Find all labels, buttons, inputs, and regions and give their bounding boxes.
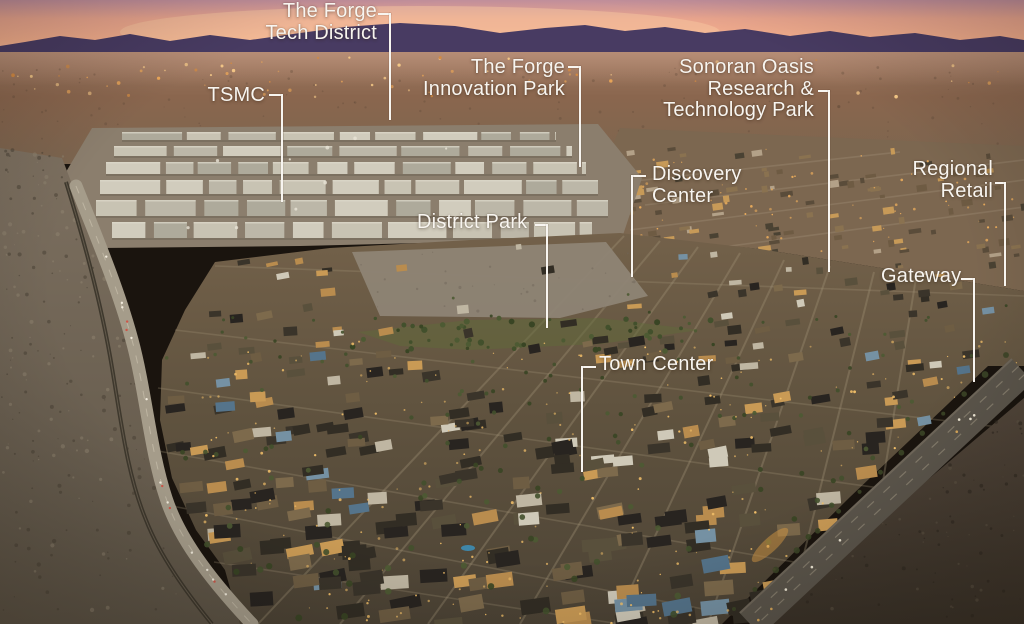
leader-sonoran-oasis-line (828, 90, 830, 272)
leader-forge-innovation-park-line (579, 66, 581, 167)
label-district-park: District Park (417, 212, 527, 234)
label-line: Sonoran Oasis (663, 57, 814, 79)
label-gateway: Gateway (881, 266, 961, 288)
label-sonoran-oasis: Sonoran Oasis Research & Technology Park (663, 57, 814, 122)
label-line: Regional (912, 159, 993, 181)
leader-tsmc-line (281, 94, 283, 202)
leader-town-center-line (581, 366, 583, 472)
label-line: Retail (912, 181, 993, 203)
label-line: Center (652, 186, 742, 208)
label-line: Research & (663, 79, 814, 101)
aerial-site-plan: The Forge Tech District TSMC The Forge I… (0, 0, 1024, 624)
label-line: The Forge (265, 1, 377, 23)
label-regional-retail: Regional Retail (912, 159, 993, 202)
label-line: Discovery (652, 164, 742, 186)
label-forge-tech-district: The Forge Tech District (265, 1, 377, 44)
leader-district-park-line (546, 224, 548, 328)
label-line: Technology Park (663, 100, 814, 122)
label-discovery-center: Discovery Center (652, 164, 742, 207)
label-tsmc: TSMC (208, 85, 265, 107)
leader-gateway-line (973, 278, 975, 382)
label-line: The Forge (423, 57, 565, 79)
label-line: TSMC (208, 85, 265, 107)
leader-discovery-center-tick (631, 175, 646, 177)
label-line: Town Center (599, 354, 713, 376)
leader-discovery-center-line (631, 175, 633, 277)
label-line: Tech District (265, 23, 377, 45)
label-line: Gateway (881, 266, 961, 288)
label-line: District Park (417, 212, 527, 234)
label-forge-innovation-park: The Forge Innovation Park (423, 57, 565, 100)
leader-town-center-tick (581, 366, 596, 368)
leader-forge-tech-district-line (389, 13, 391, 120)
leader-regional-retail-line (1004, 182, 1006, 286)
label-line: Innovation Park (423, 79, 565, 101)
label-town-center: Town Center (599, 354, 713, 376)
